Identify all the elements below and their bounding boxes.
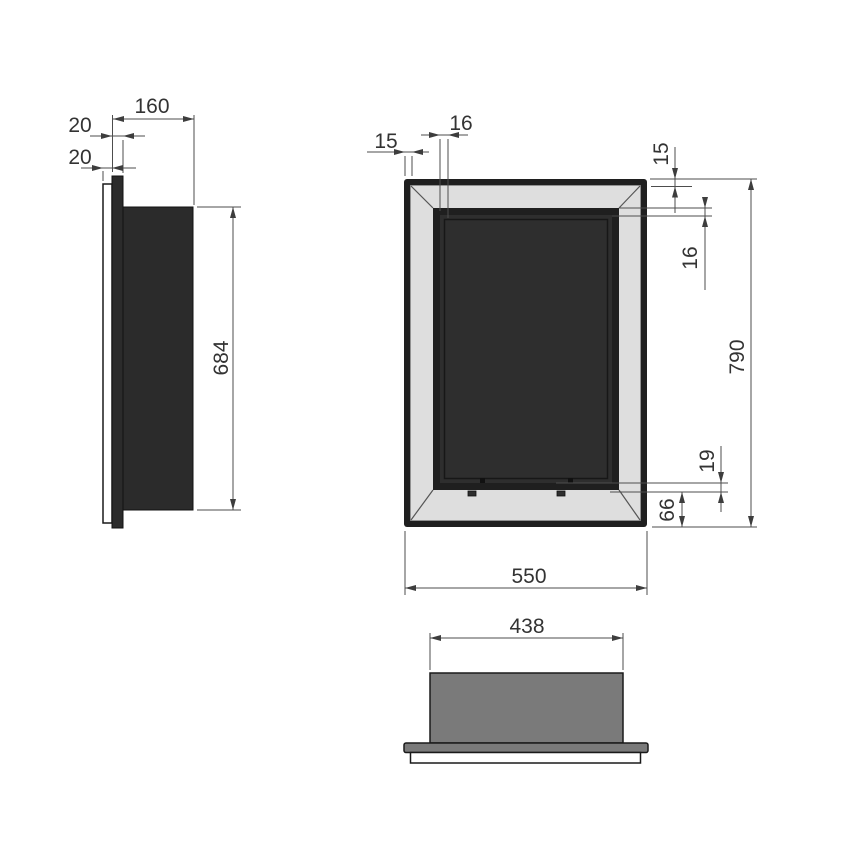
side-wall-plate (103, 184, 112, 523)
dim-label-top-width: 438 (509, 615, 544, 638)
burner-mark-right (568, 478, 573, 483)
dim-frame-left-15: 15 (367, 130, 429, 176)
top-view: 438 (404, 615, 648, 763)
dim-depth-160: 160 (113, 95, 195, 205)
dim-label-side-height: 684 (210, 340, 233, 375)
dim-bevel-66: 66 (656, 492, 682, 527)
dim-label-front-height: 790 (726, 339, 749, 374)
dim-height-684: 684 (197, 207, 241, 510)
dim-label-frame-left: 15 (374, 130, 397, 153)
foot-mark-right (557, 491, 565, 496)
top-frame-flange (404, 743, 648, 753)
dim-label-depth: 160 (134, 95, 169, 118)
dim-label-inner-top: 16 (449, 112, 472, 135)
drawing-canvas: 160 20 20 684 (0, 0, 868, 868)
dim-label-front-width: 550 (511, 565, 546, 588)
dim-width-550: 550 (405, 531, 647, 595)
dim-label-plate: 20 (68, 146, 91, 169)
foot-mark-left (468, 491, 476, 496)
top-wall-plate (411, 753, 641, 764)
side-view: 160 20 20 684 (68, 95, 241, 528)
dim-label-inner-right: 16 (679, 246, 702, 269)
dim-frame-top-15: 15 (650, 142, 757, 213)
dim-label-frame-top: 15 (650, 142, 673, 165)
side-body (123, 207, 193, 510)
dim-label-flange: 20 (68, 114, 91, 137)
top-body (430, 673, 623, 743)
burner-mark-left (480, 478, 485, 483)
dim-label-bevel: 66 (656, 498, 679, 521)
side-frame-flange (112, 176, 123, 528)
dim-plate-20: 20 (68, 146, 136, 181)
dim-body-width-438: 438 (430, 615, 623, 670)
technical-drawing: 160 20 20 684 (0, 0, 868, 868)
front-firebox (440, 215, 612, 483)
dim-label-lip: 19 (696, 449, 719, 472)
front-view: 15 16 15 16 (367, 112, 757, 595)
